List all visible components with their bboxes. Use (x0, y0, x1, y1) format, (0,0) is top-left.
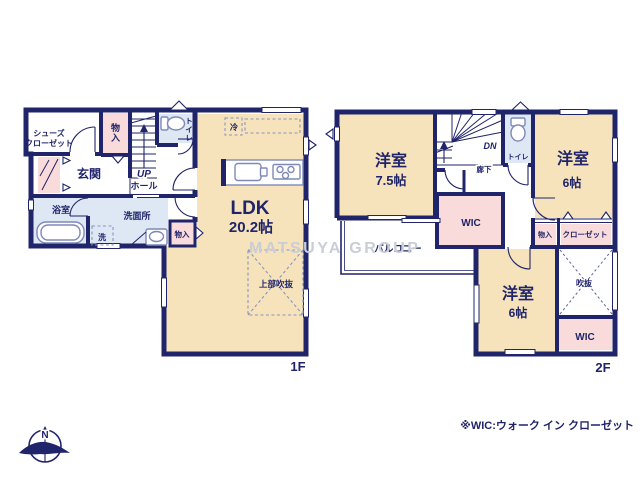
kitchen-sink (235, 164, 261, 181)
stairs-dn-label: DN (484, 141, 497, 151)
washroom-sliding-door (133, 195, 163, 198)
compass-north-label: N (41, 430, 48, 441)
bathtub-icon (37, 222, 84, 243)
floor-plan-page: シューズ クローゼット 物入 トイレ 玄関 UP ホール 浴室 洗面所 洗 物入… (0, 0, 640, 480)
void-label: 吹抜 (576, 278, 593, 288)
storage-side-label-1f: 物入 (175, 229, 190, 239)
shoes-closet-label-1: シューズ (33, 128, 65, 138)
kitchen-counter (221, 159, 303, 186)
bedroom-west-size: 7.5帖 (375, 173, 406, 188)
wic-south-label: WIC (575, 332, 594, 343)
floor1-plan: シューズ クローゼット 物入 トイレ 玄関 UP ホール 浴室 洗面所 洗 物入… (25, 101, 316, 374)
fridge-label: 冷 (230, 122, 238, 132)
floor2-plan: 洋室 7.5帖 DN 廊下 トイレ 洋室 6帖 WIC 物入 クローゼット バル… (326, 102, 618, 375)
entrance-label: 玄関 (77, 166, 101, 181)
hall-label: ホール (130, 181, 157, 191)
toilet-icon-2f (511, 118, 525, 141)
footnote: ※WIC:ウォーク イン クローゼット (460, 418, 634, 432)
closet-label-2f: クローゼット (563, 229, 608, 239)
bedroom-east-size: 6帖 (563, 175, 582, 190)
open-ceiling-label: 上部吹抜 (259, 279, 294, 289)
floor2-label: 2F (595, 360, 610, 375)
ldk-name-label: LDK (230, 198, 269, 219)
bathroom-label: 浴室 (52, 204, 70, 215)
storage-upper-label-1f: 物入 (110, 122, 121, 143)
toilet-icon-1f (161, 117, 185, 130)
entrance-door-marker (170, 101, 188, 110)
shoes-closet-label-2: クローゼット (25, 138, 73, 148)
bedroom-south-size: 6帖 (509, 305, 528, 320)
ldk-size-label: 20.2帖 (229, 218, 273, 236)
floor-plan-canvas: シューズ クローゼット 物入 トイレ 玄関 UP ホール 浴室 洗面所 洗 物入… (0, 0, 640, 480)
bedroom-west-name: 洋室 (375, 151, 407, 170)
washroom-label: 洗面所 (123, 210, 150, 221)
stairs-2f (435, 112, 503, 165)
stairs-up-label: UP (137, 169, 151, 180)
laundry-label: 洗 (98, 232, 106, 242)
toilet-door-marker-2f (512, 102, 529, 110)
floor1-label: 1F (290, 359, 305, 374)
corridor-label: 廊下 (477, 164, 492, 174)
watermark: MATSUYA GROUP (249, 240, 420, 257)
toilet-label-2f: トイレ (508, 153, 529, 161)
storage-label-2f: 物入 (538, 230, 552, 239)
wic-center-label: WIC (461, 218, 480, 229)
compass-icon: N (19, 426, 70, 462)
bedroom-east-name: 洋室 (557, 149, 589, 168)
bedroom-south-name: 洋室 (502, 284, 534, 303)
toilet-label-1f: トイレ (185, 117, 194, 143)
